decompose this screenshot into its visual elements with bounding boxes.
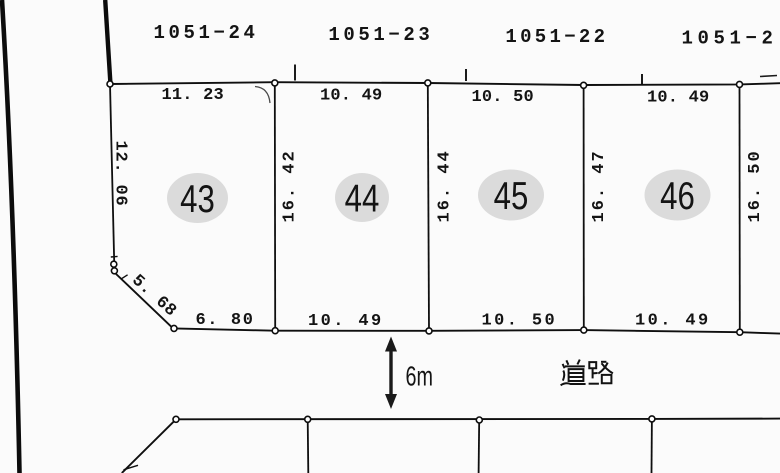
svg-text:16. 42: 16. 42	[281, 149, 300, 222]
svg-text:6m: 6m	[406, 361, 434, 392]
svg-text:16. 47: 16. 47	[590, 149, 609, 222]
svg-text:10. 49: 10. 49	[308, 312, 384, 331]
svg-text:1051−22: 1051−22	[505, 26, 608, 48]
svg-text:46: 46	[660, 175, 695, 218]
svg-text:1051−23: 1051−23	[328, 24, 433, 46]
svg-text:1051−2: 1051−2	[682, 28, 778, 50]
svg-text:16. 50: 16. 50	[746, 149, 765, 222]
svg-text:12. 06: 12. 06	[111, 141, 130, 207]
svg-text:45: 45	[494, 175, 529, 218]
svg-text:16. 44: 16. 44	[436, 149, 455, 222]
svg-text:10. 49: 10. 49	[635, 312, 711, 331]
svg-text:11. 23: 11. 23	[162, 86, 224, 105]
svg-text:1051−24: 1051−24	[154, 22, 259, 44]
svg-text:10. 50: 10. 50	[472, 88, 534, 107]
svg-text:43: 43	[180, 178, 215, 221]
svg-text:6. 80: 6. 80	[196, 311, 255, 330]
svg-text:44: 44	[345, 177, 380, 220]
svg-text:10. 50: 10. 50	[482, 312, 558, 331]
svg-text:10. 49: 10. 49	[320, 87, 382, 106]
svg-text:10. 49: 10. 49	[647, 89, 709, 108]
